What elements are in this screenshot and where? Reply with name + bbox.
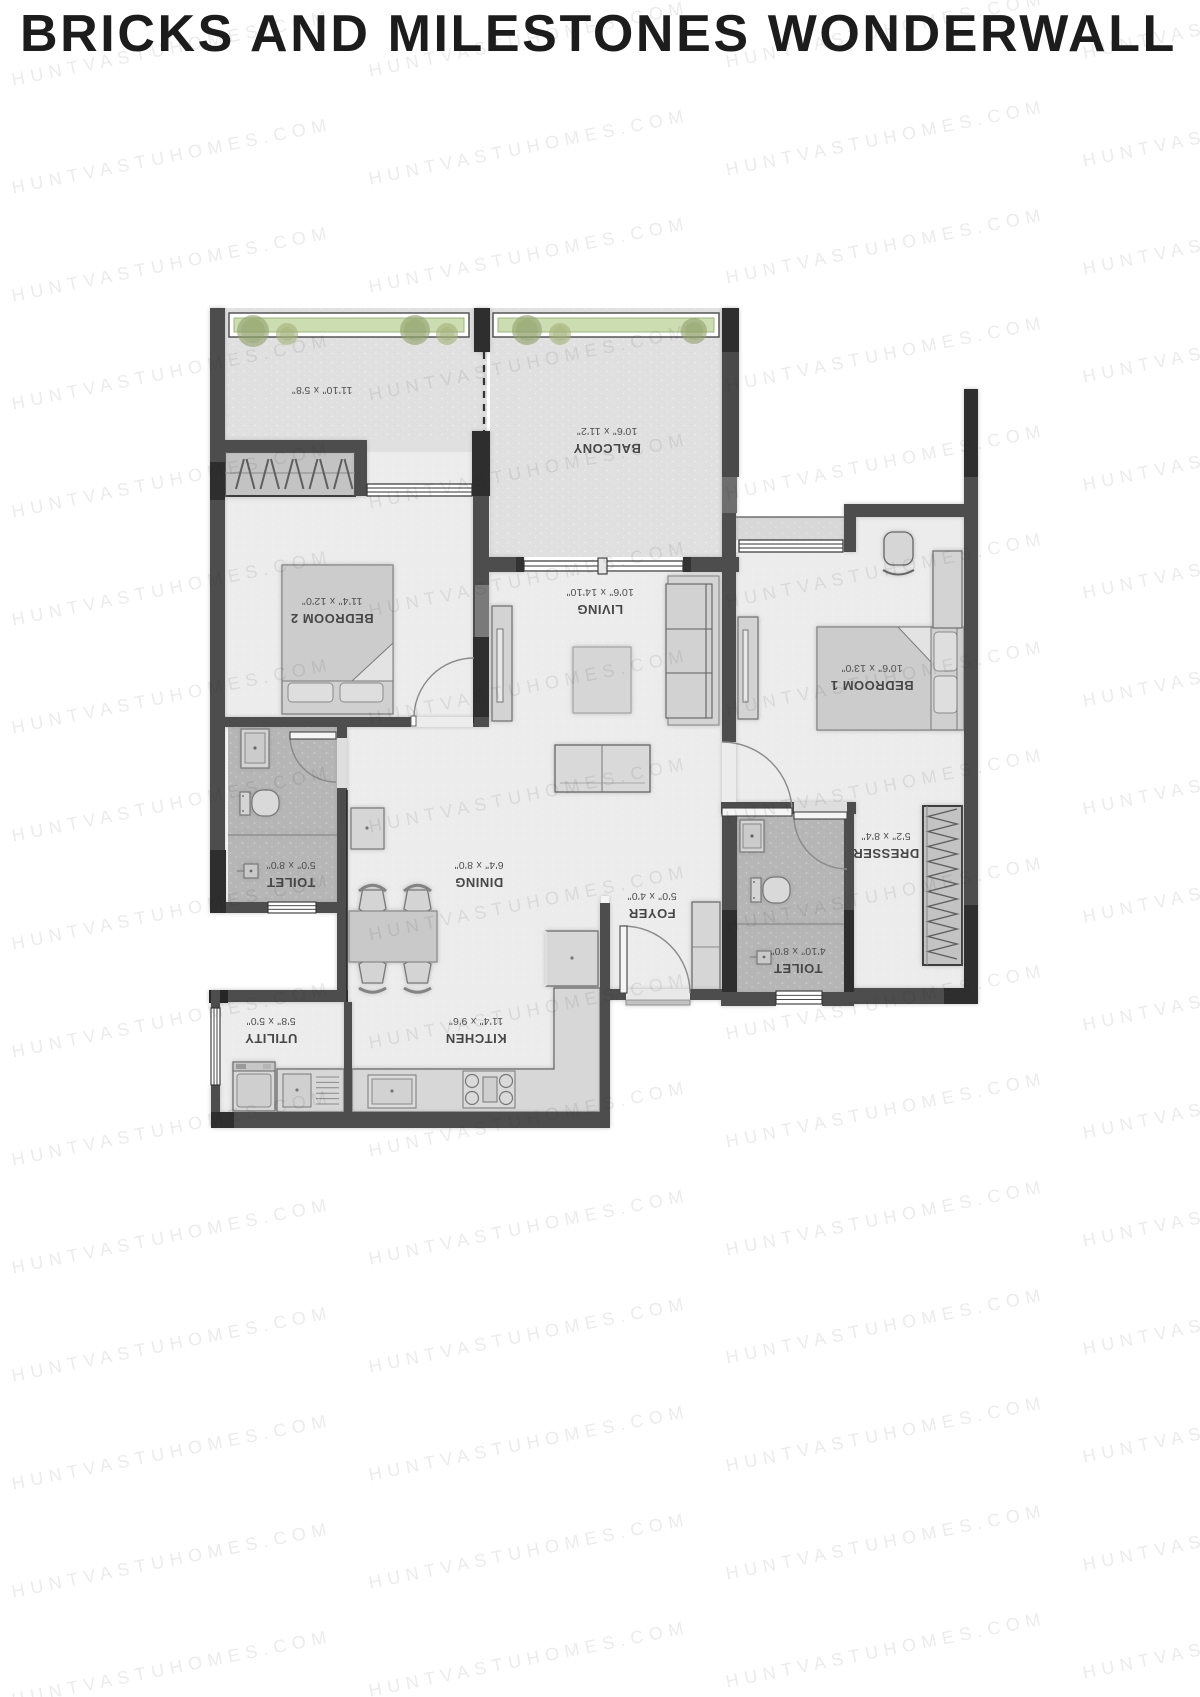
svg-text:DINING: DINING — [455, 875, 504, 890]
svg-text:11'10" x 5'8": 11'10" x 5'8" — [292, 384, 353, 396]
svg-text:FOYER: FOYER — [628, 906, 675, 921]
svg-text:LIVING: LIVING — [577, 602, 623, 617]
svg-text:DRESSER: DRESSER — [853, 846, 919, 861]
svg-text:UTILITY: UTILITY — [245, 1031, 298, 1046]
svg-text:11'4" x 12'0": 11'4" x 12'0" — [302, 595, 363, 607]
svg-text:BEDROOM 2: BEDROOM 2 — [290, 611, 373, 626]
svg-text:5'2" x 8'4": 5'2" x 8'4" — [861, 830, 910, 842]
svg-text:5'8" x 5'0": 5'8" x 5'0" — [246, 1015, 295, 1027]
svg-text:TOILET: TOILET — [774, 961, 823, 976]
svg-text:10'6" x 14'10": 10'6" x 14'10" — [566, 586, 634, 598]
svg-text:10'6" x 11'2": 10'6" x 11'2" — [577, 425, 638, 437]
svg-text:5'0" x 8'0": 5'0" x 8'0" — [266, 859, 315, 871]
svg-text:4'10" x 8'0": 4'10" x 8'0" — [770, 945, 825, 957]
svg-text:6'4" x 8'0": 6'4" x 8'0" — [454, 859, 503, 871]
